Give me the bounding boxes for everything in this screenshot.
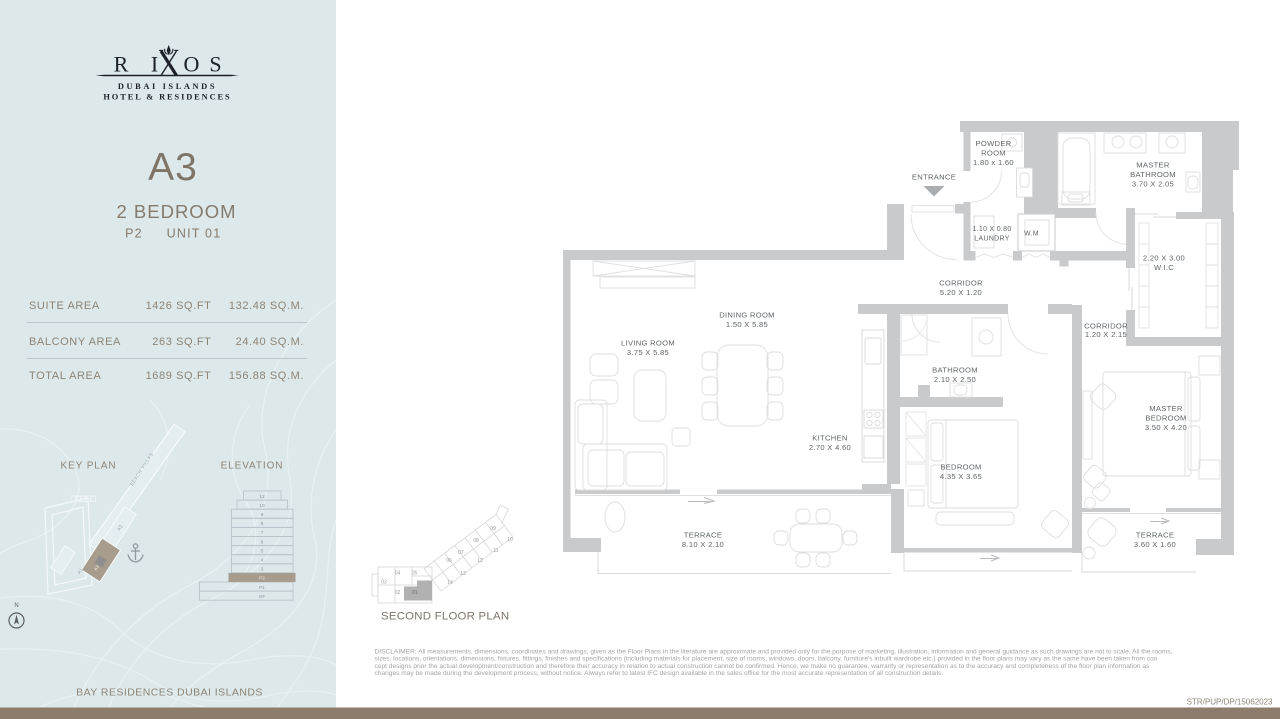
svg-text:KITCHEN: KITCHEN: [812, 434, 847, 443]
svg-text:A3: A3: [148, 146, 198, 189]
svg-text:SUITE AREA: SUITE AREA: [29, 300, 100, 312]
svg-text:POWDER: POWDER: [976, 139, 1012, 148]
svg-text:BALCONY AREA: BALCONY AREA: [29, 336, 121, 348]
svg-text:10: 10: [507, 537, 513, 543]
svg-text:3.60 X 1.60: 3.60 X 1.60: [1134, 540, 1176, 549]
svg-text:BATHROOM: BATHROOM: [1130, 170, 1176, 179]
svg-text:BAY RESIDENCES DUBAI ISLANDS: BAY RESIDENCES DUBAI ISLANDS: [76, 687, 263, 699]
svg-text:2.70 X 4.60: 2.70 X 4.60: [809, 443, 851, 452]
svg-text:O: O: [184, 52, 200, 77]
svg-text:LIVING ROOM: LIVING ROOM: [621, 339, 675, 348]
svg-text:UNIT 01: UNIT 01: [167, 227, 222, 241]
svg-text:3.50 X 4.20: 3.50 X 4.20: [1145, 423, 1187, 432]
svg-text:3.70 X 2.05: 3.70 X 2.05: [1132, 180, 1174, 189]
svg-text:1.80 x 1.60: 1.80 x 1.60: [973, 158, 1014, 167]
svg-text:cept designs prior the actual: cept designs prior the actual developmen…: [375, 663, 1151, 670]
svg-text:S: S: [209, 52, 221, 77]
svg-text:W.I.C: W.I.C: [1154, 263, 1174, 272]
svg-text:1.50 X 5.85: 1.50 X 5.85: [726, 320, 768, 329]
svg-text:sizes, locations, orientations: sizes, locations, orientations, dimensio…: [375, 656, 1158, 663]
svg-text:01: 01: [412, 590, 418, 596]
svg-text:2.20 X 3.00: 2.20 X 3.00: [1143, 254, 1185, 263]
svg-text:BEDROOM: BEDROOM: [940, 463, 981, 472]
svg-text:4: 4: [261, 558, 264, 564]
svg-text:HOTEL & RESIDENCES: HOTEL & RESIDENCES: [103, 93, 231, 102]
svg-text:6: 6: [261, 539, 264, 545]
svg-text:TERRACE: TERRACE: [684, 531, 722, 540]
svg-text:3.75 X 5.85: 3.75 X 5.85: [627, 348, 669, 357]
svg-text:1426 SQ.FT: 1426 SQ.FT: [146, 300, 212, 312]
svg-text:8: 8: [261, 521, 264, 527]
svg-text:09: 09: [490, 526, 496, 532]
svg-text:03: 03: [381, 580, 387, 586]
svg-text:ENTRANCE: ENTRANCE: [912, 173, 956, 182]
svg-text:8.10 X 2.10: 8.10 X 2.10: [682, 540, 724, 549]
svg-text:5.20 X 1.20: 5.20 X 1.20: [940, 288, 982, 297]
svg-text:7: 7: [261, 530, 264, 536]
svg-text:1.20 X 2.15: 1.20 X 2.15: [1085, 330, 1127, 339]
svg-text:STR/PUP/DP/15062023: STR/PUP/DP/15062023: [1187, 698, 1273, 707]
svg-text:ROOM: ROOM: [981, 148, 1006, 157]
svg-text:3: 3: [261, 567, 264, 573]
svg-text:02: 02: [395, 590, 401, 596]
svg-text:06: 06: [446, 558, 452, 564]
svg-text:08: 08: [473, 538, 479, 544]
svg-text:TERRACE: TERRACE: [1136, 531, 1174, 540]
svg-text:ELEVATION: ELEVATION: [221, 461, 284, 472]
svg-text:04: 04: [395, 571, 401, 577]
svg-text:2 BEDROOM: 2 BEDROOM: [116, 201, 236, 222]
svg-text:TOTAL AREA: TOTAL AREA: [29, 370, 101, 382]
svg-text:W.M: W.M: [1024, 231, 1039, 238]
svg-text:P2: P2: [125, 227, 143, 241]
svg-text:14: 14: [447, 580, 453, 586]
svg-text:24.40 SQ.M.: 24.40 SQ.M.: [236, 336, 304, 348]
svg-text:9: 9: [261, 512, 264, 518]
svg-text:MASTER: MASTER: [1136, 161, 1170, 170]
svg-text:DISCLAIMER: All measurements,: DISCLAIMER: All measurements, dimensions…: [375, 648, 1173, 655]
svg-text:07: 07: [458, 550, 464, 556]
svg-text:GF: GF: [259, 594, 266, 600]
svg-text:263 SQ.FT: 263 SQ.FT: [152, 336, 211, 348]
svg-text:I: I: [151, 52, 158, 77]
svg-text:SECOND FLOOR PLAN: SECOND FLOOR PLAN: [381, 611, 509, 623]
svg-text:CORRIDOR: CORRIDOR: [939, 279, 983, 288]
svg-text:1689 SQ.FT: 1689 SQ.FT: [146, 370, 212, 382]
svg-text:1.10 X 0.80: 1.10 X 0.80: [972, 226, 1011, 233]
svg-text:P2: P2: [259, 576, 265, 582]
svg-text:5: 5: [261, 548, 264, 554]
svg-text:R: R: [114, 52, 129, 77]
svg-text:4.35 X 3.65: 4.35 X 3.65: [940, 472, 982, 481]
svg-text:11: 11: [493, 548, 498, 554]
svg-text:BEDROOM: BEDROOM: [1145, 414, 1186, 423]
svg-text:132.48 SQ.M.: 132.48 SQ.M.: [229, 300, 304, 312]
svg-text:BATHROOM: BATHROOM: [932, 366, 978, 375]
svg-text:10: 10: [259, 503, 265, 509]
svg-text:13: 13: [460, 571, 466, 577]
svg-text:changes may be made during the: changes may be made during the developme…: [375, 670, 944, 677]
svg-text:12: 12: [259, 494, 265, 500]
svg-text:2.10 X 2.50: 2.10 X 2.50: [934, 375, 976, 384]
svg-text:LAUNDRY: LAUNDRY: [974, 235, 1009, 242]
svg-text:DINING ROOM: DINING ROOM: [719, 311, 775, 320]
svg-text:156.88 SQ.M.: 156.88 SQ.M.: [229, 370, 304, 382]
svg-text:12: 12: [477, 558, 483, 564]
svg-text:MASTER: MASTER: [1149, 404, 1183, 413]
svg-text:05: 05: [412, 571, 418, 577]
svg-text:P1: P1: [259, 585, 265, 591]
svg-text:DUBAI ISLANDS: DUBAI ISLANDS: [118, 82, 217, 91]
svg-text:KEY PLAN: KEY PLAN: [61, 461, 117, 472]
svg-text:N: N: [14, 603, 18, 609]
